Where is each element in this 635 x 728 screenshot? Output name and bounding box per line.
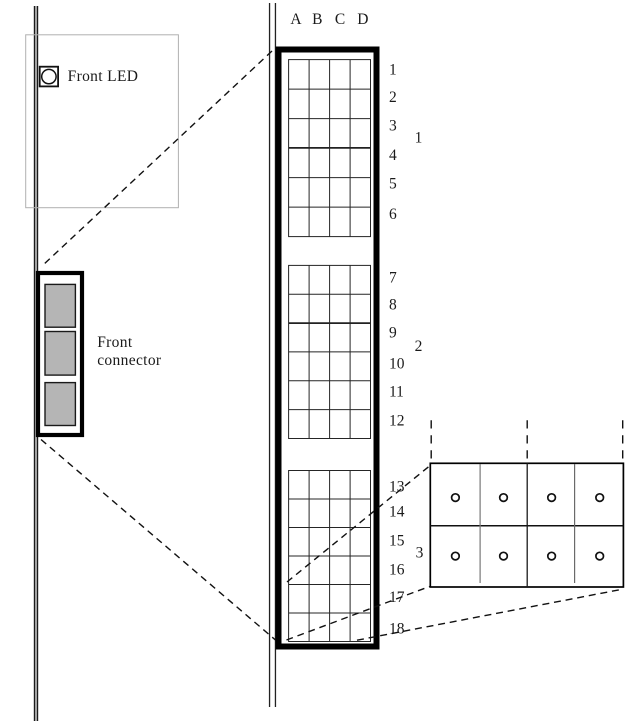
svg-text:2: 2	[389, 89, 397, 106]
svg-text:D: D	[357, 11, 368, 28]
svg-text:C: C	[335, 11, 345, 28]
svg-text:15: 15	[389, 533, 405, 550]
svg-text:3: 3	[389, 117, 397, 134]
svg-text:5: 5	[389, 176, 397, 193]
svg-text:Front: Front	[97, 334, 133, 351]
svg-text:A: A	[290, 11, 302, 28]
svg-text:1: 1	[415, 130, 423, 147]
svg-text:connector: connector	[97, 352, 162, 369]
svg-text:B: B	[312, 11, 322, 28]
svg-text:11: 11	[389, 384, 404, 401]
svg-text:12: 12	[389, 413, 405, 430]
svg-text:18: 18	[389, 621, 405, 638]
svg-text:14: 14	[389, 503, 405, 520]
svg-text:6: 6	[389, 206, 397, 223]
svg-text:8: 8	[389, 297, 397, 314]
svg-text:Front LED: Front LED	[68, 68, 139, 85]
svg-text:7: 7	[389, 270, 397, 287]
svg-text:9: 9	[389, 325, 397, 342]
svg-text:1: 1	[389, 62, 397, 79]
svg-text:2: 2	[415, 338, 423, 355]
svg-text:10: 10	[389, 356, 405, 373]
svg-text:3: 3	[416, 544, 424, 561]
svg-text:4: 4	[389, 147, 397, 164]
svg-text:16: 16	[389, 561, 405, 578]
